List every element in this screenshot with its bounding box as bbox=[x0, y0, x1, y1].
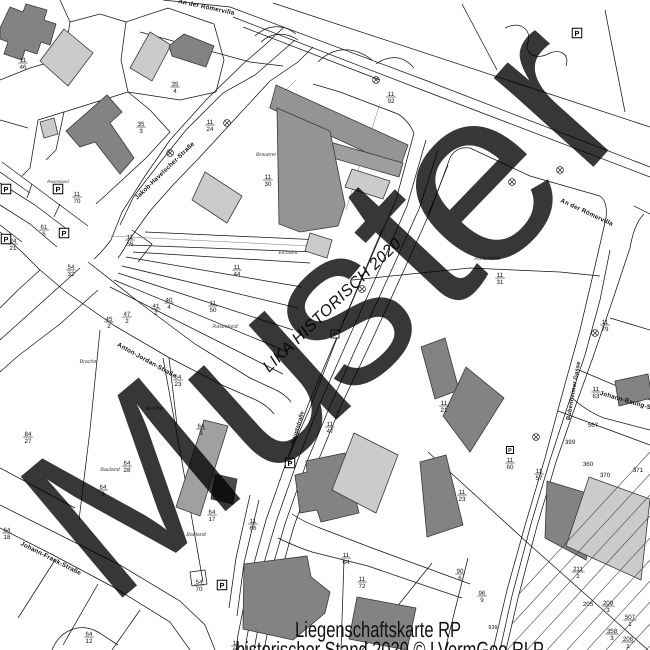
svg-text:939: 939 bbox=[488, 625, 497, 631]
svg-text:371: 371 bbox=[633, 467, 644, 474]
svg-text:21: 21 bbox=[441, 407, 448, 414]
svg-text:P: P bbox=[56, 185, 61, 194]
svg-text:P: P bbox=[62, 229, 67, 238]
svg-text:P: P bbox=[575, 29, 580, 38]
svg-text:3: 3 bbox=[139, 128, 143, 135]
svg-text:205: 205 bbox=[583, 601, 594, 608]
svg-text:360: 360 bbox=[583, 461, 594, 468]
svg-text:12: 12 bbox=[86, 638, 93, 645]
svg-text:57: 57 bbox=[536, 475, 543, 482]
svg-text:399: 399 bbox=[565, 439, 576, 446]
svg-text:21: 21 bbox=[10, 245, 17, 252]
svg-text:79: 79 bbox=[602, 326, 609, 333]
svg-text:6: 6 bbox=[458, 575, 462, 582]
svg-text:5: 5 bbox=[42, 231, 46, 238]
svg-text:72: 72 bbox=[359, 583, 366, 590]
svg-text:3: 3 bbox=[606, 607, 610, 614]
svg-text:historischer Stand 2020 © LVer: historischer Stand 2020 © LVermGeo RLP bbox=[236, 637, 544, 650]
svg-text:P: P bbox=[508, 448, 512, 454]
svg-text:3: 3 bbox=[610, 635, 614, 642]
svg-text:1: 1 bbox=[626, 643, 630, 650]
svg-text:9: 9 bbox=[480, 597, 484, 604]
svg-text:P: P bbox=[220, 581, 225, 590]
svg-text:60: 60 bbox=[507, 464, 514, 471]
svg-text:Rasenland: Rasenland bbox=[47, 179, 69, 184]
svg-text:370: 370 bbox=[600, 472, 611, 479]
svg-text:1: 1 bbox=[628, 621, 632, 628]
svg-text:1: 1 bbox=[576, 573, 580, 580]
svg-text:2: 2 bbox=[107, 323, 111, 330]
svg-text:30: 30 bbox=[265, 181, 272, 188]
svg-text:18: 18 bbox=[4, 534, 11, 541]
svg-text:64: 64 bbox=[343, 559, 350, 566]
svg-text:46: 46 bbox=[20, 64, 27, 71]
svg-text:4: 4 bbox=[173, 88, 177, 95]
svg-text:P: P bbox=[4, 185, 9, 194]
svg-text:24: 24 bbox=[207, 126, 214, 133]
svg-text:23: 23 bbox=[459, 496, 466, 503]
svg-text:567: 567 bbox=[588, 422, 599, 429]
svg-text:70: 70 bbox=[74, 198, 81, 205]
svg-text:Brauerei: Brauerei bbox=[256, 152, 277, 158]
svg-text:32: 32 bbox=[68, 271, 75, 278]
svg-text:55: 55 bbox=[127, 241, 134, 248]
svg-text:P: P bbox=[4, 235, 9, 244]
